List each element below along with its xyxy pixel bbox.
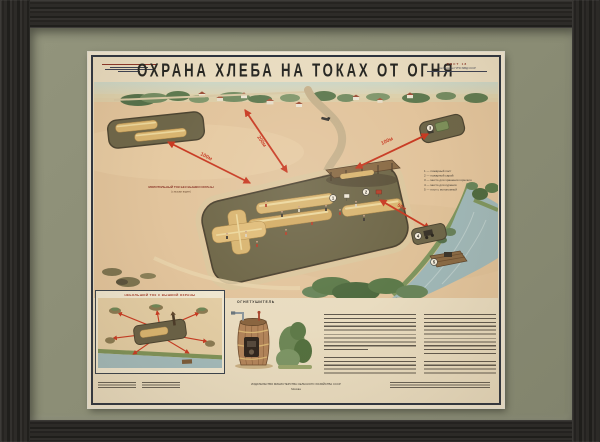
frame-edge-left	[0, 0, 30, 442]
frame-edge-right	[572, 0, 600, 442]
marker-4: 4	[415, 233, 422, 240]
framed-poster-photo: ОХРАНА ХЛЕБА НА ТОКАХ ОТ ОГНЯ ЛИСТ 18 Со…	[0, 0, 600, 442]
header-approval-note: ЛИСТ 18 Согласовано ГУПО МВД СССР	[424, 62, 490, 72]
inset-raft	[182, 359, 192, 364]
credits-publisher: ИЗДАТЕЛЬСТВО МИНИСТЕРСТВА СЕЛЬСКОГО ХОЗЯ…	[236, 382, 356, 391]
credits-right	[390, 382, 490, 388]
publisher-line: ИЗДАТЕЛЬСТВО МИНИСТЕРСТВА СЕЛЬСКОГО ХОЗЯ…	[236, 382, 356, 386]
inset-extinguisher-title: ОГНЕТУШИТЕЛЬ	[230, 300, 282, 307]
inset-extinguisher: ОГНЕТУШИТЕЛЬ	[230, 300, 312, 378]
inset-extinguisher-illustration	[230, 307, 312, 373]
poster: ОХРАНА ХЛЕБА НА ТОКАХ ОТ ОГНЯ ЛИСТ 18 Со…	[88, 52, 504, 408]
body-text-column-2	[424, 314, 496, 374]
approval-label: Согласовано ГУПО МВД СССР	[424, 67, 490, 70]
publisher-city: Москва	[236, 387, 356, 391]
inset-plan-illustration	[98, 298, 222, 368]
scene-illustration: МОЛОТИЛЬНЫЙ ТОК БЕЗ ВЫШКИ ОХРАНЫ (с вышк…	[94, 82, 498, 298]
reserve-floor-caption-sub: (с вышки виден)	[171, 189, 191, 193]
legend-line-5: 5 — плот с мотопомпой	[424, 187, 457, 191]
legend-line-3: 3 — место для хранения горючего	[424, 178, 472, 182]
credits-left	[98, 382, 184, 391]
marker-1: 1	[330, 195, 337, 202]
inset-trees	[276, 322, 312, 369]
frame-edge-top	[0, 0, 600, 28]
legend-line-1: 1 — пожарный пост	[424, 169, 452, 173]
page-title: ОХРАНА ХЛЕБА НА ТОКАХ ОТ ОГНЯ	[152, 58, 440, 82]
marker-2: 2	[363, 189, 370, 196]
poster-title-text: ОХРАНА ХЛЕБА НА ТОКАХ ОТ ОГНЯ	[137, 60, 455, 81]
barrel	[231, 311, 269, 365]
discharge-pipe	[235, 313, 243, 321]
legend-line-4: 4 — место для курения	[424, 183, 457, 187]
inset-plan: НЕБОЛЬШОЙ ТОК С ВЫШКОЙ ОХРАНЫ	[95, 290, 225, 374]
reserve-floor-caption: МОЛОТИЛЬНЫЙ ТОК БЕЗ ВЫШКИ ОХРАНЫ	[148, 185, 213, 189]
legend-line-2: 2 — пожарный сарай	[424, 174, 454, 178]
frame-edge-bottom	[0, 420, 600, 442]
marker-5: 5	[431, 259, 438, 266]
body-text-column-1	[324, 314, 416, 374]
marker-3: 3	[427, 125, 434, 132]
nozzle	[231, 311, 235, 314]
sheet-label: ЛИСТ 18	[424, 62, 490, 66]
